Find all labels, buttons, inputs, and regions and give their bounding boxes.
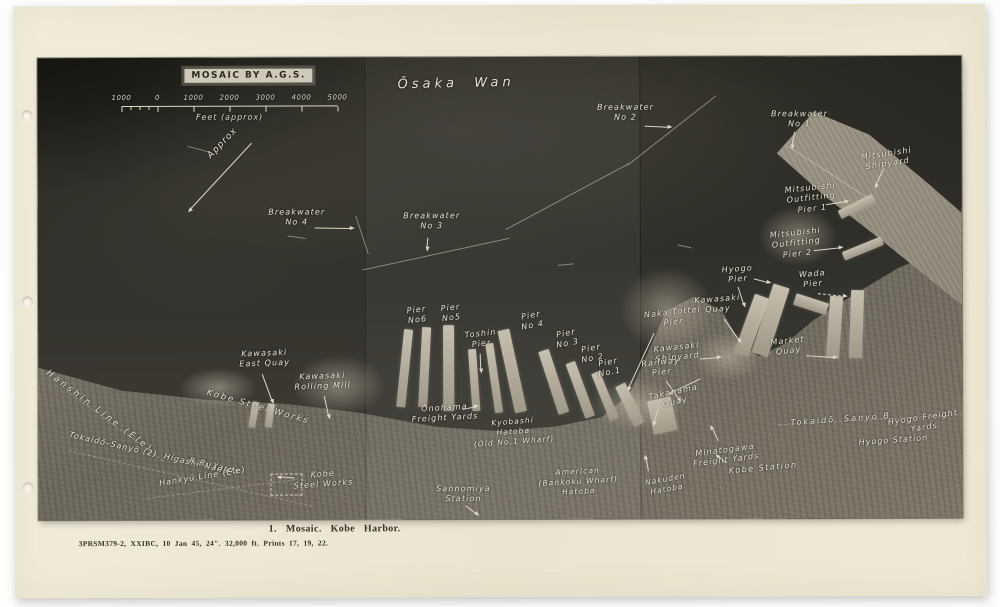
pier-shape: [443, 325, 454, 411]
photo-label: Breakwater No 3: [403, 211, 460, 232]
arrow-head-icon: [843, 294, 848, 298]
photo-label: Kawasaki East Quay: [239, 348, 290, 371]
punch-hole: [22, 296, 33, 307]
photo-label: Toshin Pier: [464, 327, 498, 351]
arrow-head-icon: [742, 302, 747, 308]
scanned-page: MOSAIC BY A.G.S. 10000100020003000400050…: [0, 0, 1000, 607]
paper: MOSAIC BY A.G.S. 10000100020003000400050…: [13, 4, 987, 599]
arrow-head-icon: [766, 280, 772, 285]
photo-label: Pier No.1: [596, 356, 622, 380]
photo-label: Market Quay: [770, 334, 806, 358]
photo-label: American (Bankoku Wharf) Hatoba: [538, 465, 619, 499]
arrow-head-icon: [838, 245, 843, 250]
photo-mosaic: MOSAIC BY A.G.S. 10000100020003000400050…: [37, 56, 962, 520]
photo-label: Sannomiya Station: [436, 484, 491, 505]
photo-label: Breakwater No 1: [771, 109, 828, 130]
photo-label: Kyobashi Hatoba (Old No.1 Wharf): [472, 414, 555, 449]
scale-tick-number: 1000: [184, 94, 204, 102]
scale-tick: [337, 106, 338, 111]
breakwater-line: [288, 236, 306, 239]
arrow-head-icon: [643, 454, 648, 460]
scale-bar: 1000010002000300040005000 Feet (approx): [121, 93, 337, 120]
photo-label: Pier No6: [406, 304, 428, 327]
arrow-head-icon: [844, 199, 850, 204]
leader-arrow: [754, 278, 770, 283]
photo-label: Kawasaki Rolling Mill: [294, 370, 351, 393]
photo-label: Breakwater No 2: [597, 103, 654, 124]
pier-shape: [793, 293, 829, 315]
arrow-head-icon: [187, 207, 193, 213]
breakwater-line: [678, 245, 692, 249]
photo-label: Breakwater No 4: [268, 207, 325, 228]
photo-label: Approx: [206, 126, 241, 162]
breakwater-line: [187, 146, 209, 153]
scale-numbers: 1000010002000300040005000: [121, 93, 337, 104]
leader-arrow: [262, 374, 273, 403]
scale-tick: [301, 107, 302, 112]
arrow-head-icon: [667, 125, 672, 129]
caption-credit: 3PRSM379-2, XXIBC, 10 Jan 45, 24". 32,00…: [79, 538, 329, 548]
scale-tick: [265, 107, 266, 112]
scale-minor-tick: [130, 107, 131, 110]
scale-tick: [157, 107, 158, 112]
mosaic-seam-band: [364, 57, 641, 520]
scale-tick: [193, 107, 194, 112]
scale-tick-number: 4000: [292, 93, 312, 101]
caption-title: 1. Mosaic. Kobe Harbor.: [185, 523, 485, 535]
photo-label: Railway Pier: [641, 356, 682, 381]
scale-tick: [229, 107, 230, 112]
scale-tick-number: 0: [155, 94, 160, 102]
arrow-head-icon: [833, 355, 838, 359]
photo-label: Pier No5: [440, 302, 462, 325]
arrow-head-icon: [276, 475, 281, 479]
pier-shape: [842, 236, 884, 260]
arrow-head-icon: [425, 247, 429, 252]
photo-label: Pier No 3: [554, 327, 580, 351]
photo-label: Pier No 4: [519, 309, 545, 333]
scale-minor-tick: [148, 107, 149, 110]
photo-label: Hyogo Pier: [721, 263, 754, 286]
arrow-head-icon: [479, 368, 483, 373]
scale-unit-label: Feet (approx): [122, 112, 338, 122]
photo-label: Kobe Steel Works: [293, 467, 354, 492]
scale-tick: [121, 107, 122, 112]
scale-minor-tick: [139, 107, 140, 110]
pier-shape: [849, 290, 864, 358]
photo-label: Ōsaka Wan: [397, 75, 514, 94]
scale-tick-number: 3000: [256, 94, 276, 102]
arrow-head-icon: [327, 414, 332, 420]
scale-tick-number: 5000: [328, 93, 348, 101]
punch-hole: [22, 482, 33, 493]
photo-label: Mitsubishi Outfitting Pier 1: [784, 180, 838, 216]
photo-label: Ōnohama Freight Yards: [411, 401, 479, 425]
punch-hole: [21, 110, 32, 121]
arrow-head-icon: [350, 226, 355, 230]
leader-arrow: [645, 126, 671, 128]
photo-label: Wada Pier: [799, 268, 827, 291]
agency-stamp: MOSAIC BY A.G.S.: [183, 67, 313, 83]
arrow-head-icon: [717, 355, 722, 359]
scale-tick-number: 2000: [220, 94, 240, 102]
photo-label: Mitsubishi Outfitting Pier 2: [769, 225, 823, 261]
arrow-head-icon: [790, 144, 795, 150]
scale-tick-number: 1000: [112, 94, 132, 102]
